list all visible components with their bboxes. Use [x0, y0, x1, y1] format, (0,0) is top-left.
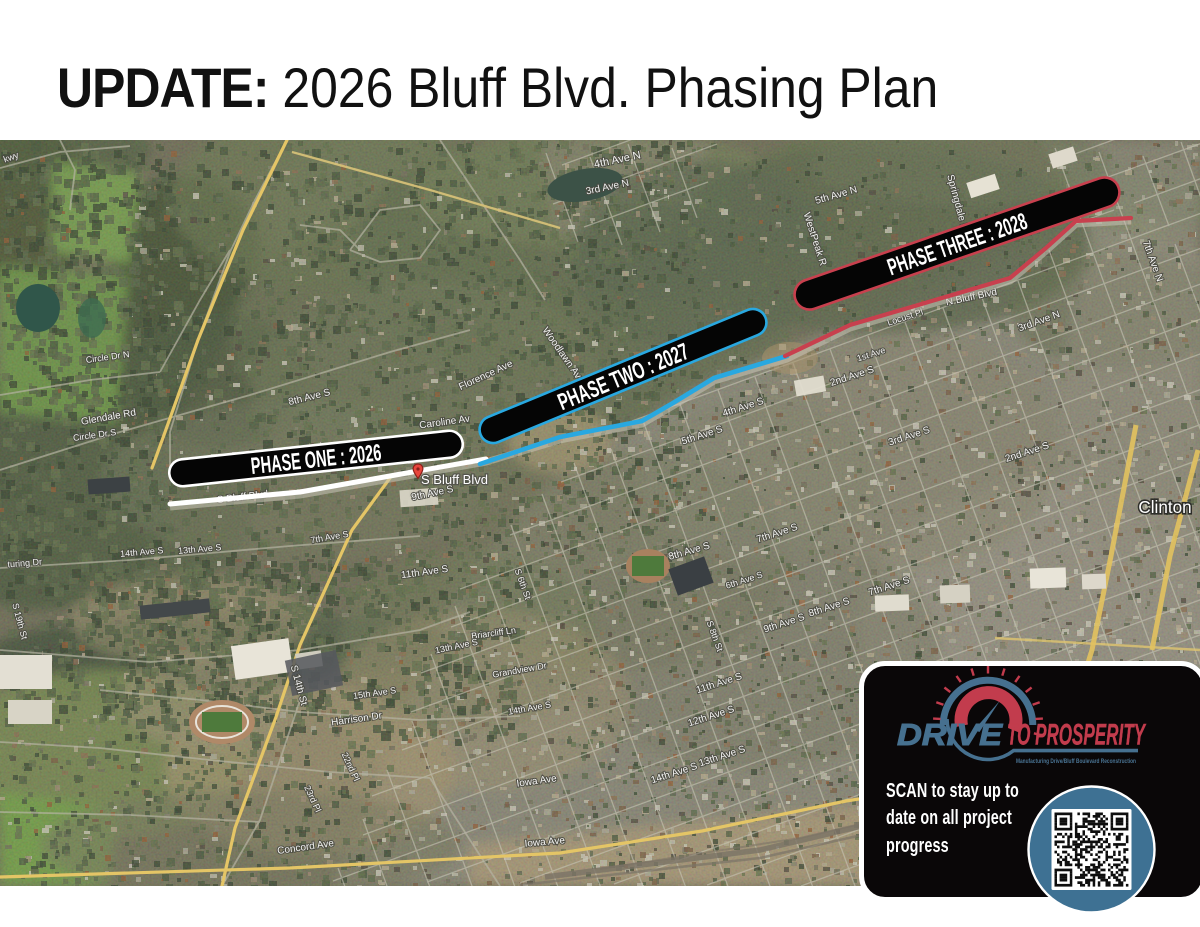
- svg-text:S Bluff Blvd: S Bluff Blvd: [421, 472, 488, 487]
- svg-text:Clinton: Clinton: [1138, 497, 1191, 518]
- svg-text:Manufacturing Drive/Bluff Boul: Manufacturing Drive/Bluff Boulevard Reco…: [1016, 758, 1136, 765]
- svg-text:TO PROSPERITY: TO PROSPERITY: [1007, 719, 1147, 752]
- svg-text:DRIVE: DRIVE: [897, 718, 1004, 752]
